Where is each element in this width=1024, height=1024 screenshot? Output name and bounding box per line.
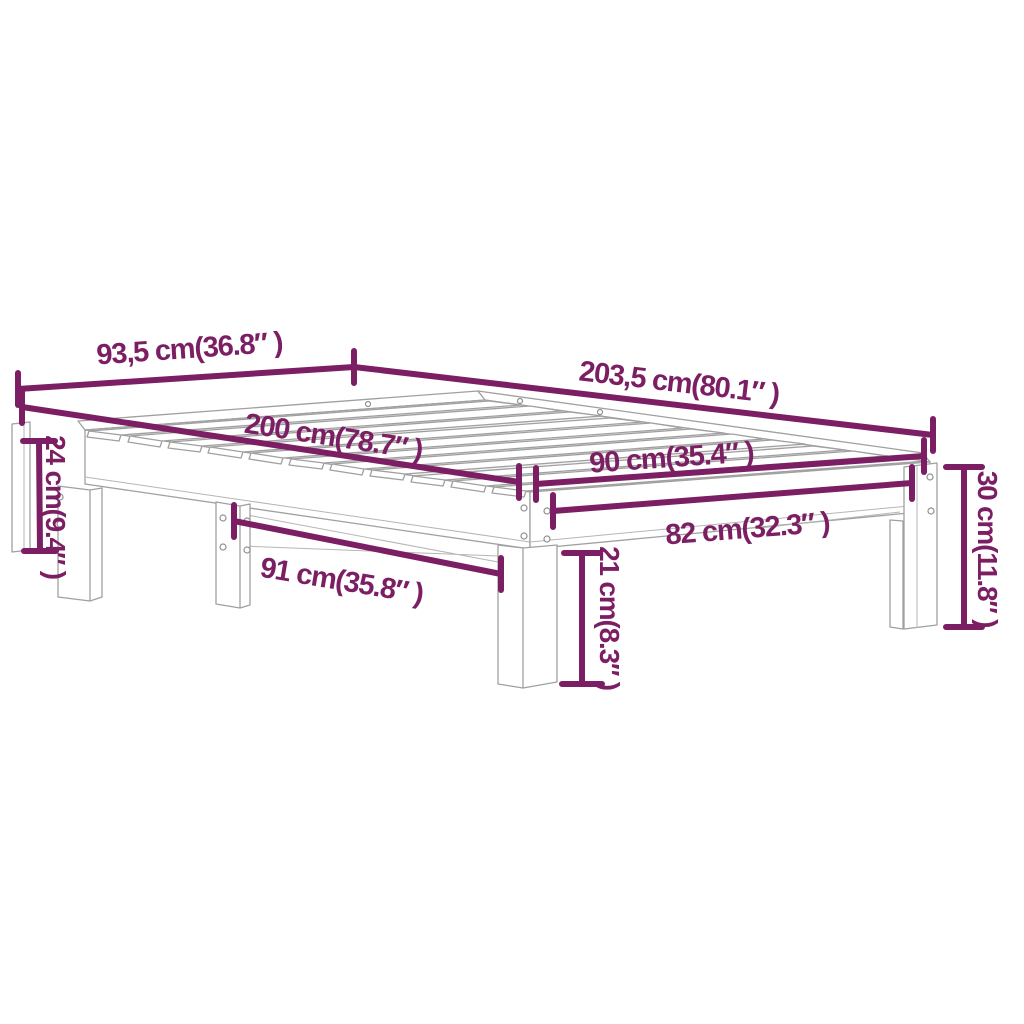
screw <box>366 402 371 407</box>
screw <box>220 544 226 550</box>
dim-line-outer-width-foot <box>18 367 354 389</box>
screw <box>544 508 550 514</box>
leg-near-corner <box>498 545 557 688</box>
screw <box>598 410 603 415</box>
dim-line-foot-leg-height <box>39 441 40 551</box>
dim-label-foot-leg-height: 24 cm(9.4″ ) <box>40 435 71 579</box>
leg-head-rear <box>890 520 903 629</box>
dim-label-total-height: 30 cm(11.8″ ) <box>972 471 1003 628</box>
screw <box>220 515 226 521</box>
leg-head-corner <box>904 463 937 629</box>
dim-label-outer-width-foot: 93,5 cm(36.8″ ) <box>95 327 283 372</box>
bed-dimension-diagram: 93,5 cm(36.8″ ) 203,5 cm(80.1″ ) 200 cm(… <box>0 0 1024 1024</box>
screw <box>544 536 550 542</box>
dim-label-under-clearance: 21 cm(8.3″ ) <box>594 546 625 690</box>
screw <box>927 474 933 480</box>
screw <box>521 505 527 511</box>
screw <box>521 533 527 539</box>
screw <box>518 399 523 404</box>
screw <box>244 547 250 553</box>
screw <box>928 508 934 514</box>
dim-label-side-rail-span: 91 cm(35.8″ ) <box>258 552 426 611</box>
